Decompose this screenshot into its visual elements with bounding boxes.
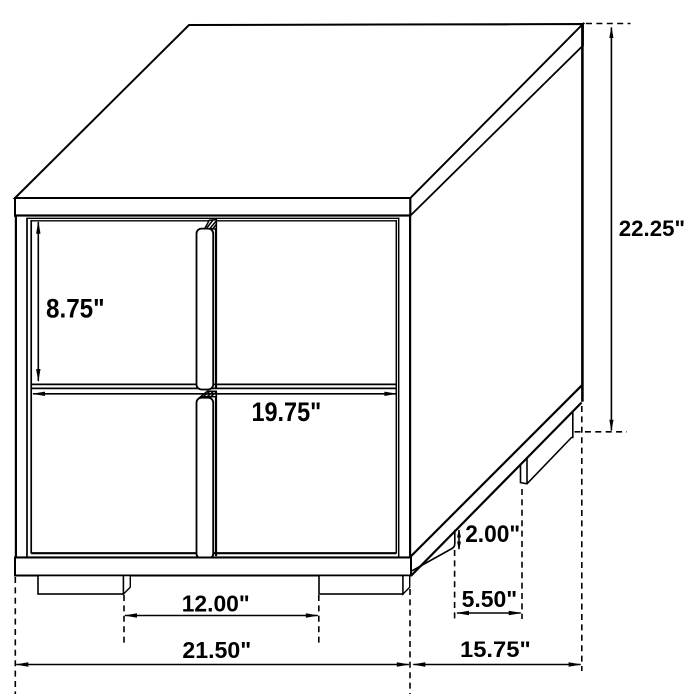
svg-text:5.50": 5.50" [462,586,518,612]
svg-text:19.75": 19.75" [252,397,322,427]
svg-text:2.00": 2.00" [465,521,520,548]
svg-text:22.25": 22.25" [619,216,685,241]
svg-text:21.50": 21.50" [182,637,251,663]
svg-text:12.00": 12.00" [182,590,250,616]
svg-text:15.75": 15.75" [460,637,531,662]
svg-text:8.75": 8.75" [46,294,105,324]
